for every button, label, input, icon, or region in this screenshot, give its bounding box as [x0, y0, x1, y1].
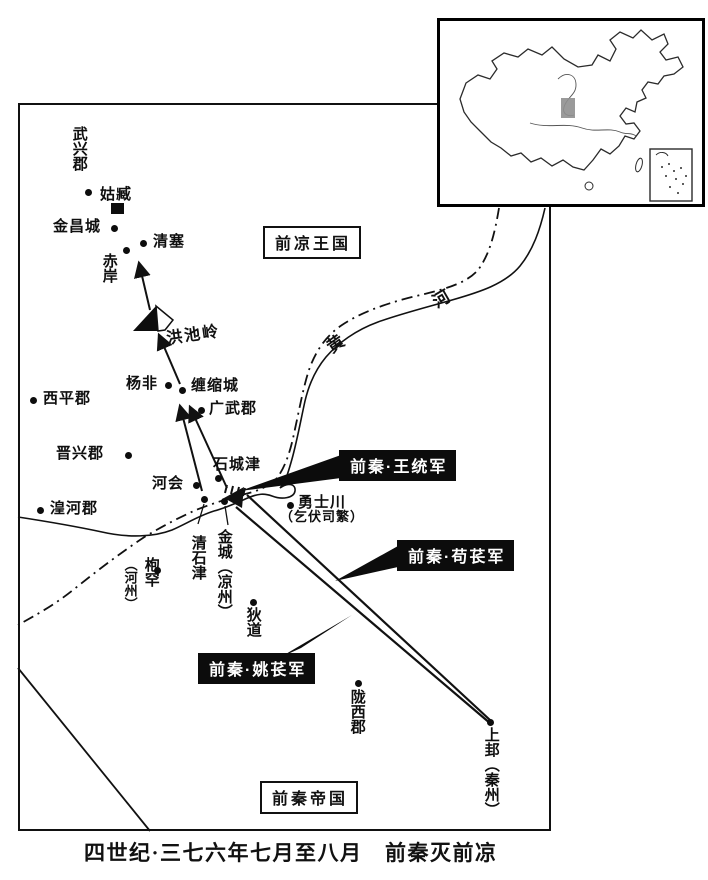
place-marker-5 — [123, 247, 130, 254]
region-box-former-qin: 前秦帝国 — [260, 781, 358, 814]
historical-map-page: 前凉王国 前秦帝国 前秦·王统军 前秦·苟苌军 前秦·姚苌军 黄 河 洪池岭 四… — [0, 0, 708, 880]
south-china-sea-inset-box — [650, 149, 692, 201]
place-marker-14 — [221, 498, 228, 505]
place-marker-2 — [111, 203, 124, 214]
place-label: 金城（凉州） — [216, 529, 232, 619]
place-label: 金昌城 — [53, 219, 101, 235]
caption: 四世纪·三七六年七月至八月 前秦灭前凉 — [84, 837, 498, 867]
china-locator-inset — [437, 18, 705, 207]
hainan-island — [585, 182, 593, 190]
place-marker-4 — [140, 240, 147, 247]
place-label: 清塞 — [153, 234, 185, 250]
place-label: 河会 — [152, 476, 184, 492]
map-frame — [18, 103, 551, 831]
place-label: 缠缩城 — [191, 378, 239, 394]
place-label: 姑臧 — [100, 187, 132, 203]
place-label: 湟河郡 — [50, 501, 98, 517]
inset-river-yangtze — [530, 123, 636, 136]
place-marker-13 — [201, 496, 208, 503]
place-marker-10 — [125, 452, 132, 459]
place-marker-8 — [198, 407, 205, 414]
army-box-yaochang: 前秦·姚苌军 — [198, 653, 315, 684]
army-box-wangtong: 前秦·王统军 — [339, 450, 456, 481]
place-label: 枹罕 — [143, 557, 159, 587]
place-label: 晋兴郡 — [56, 446, 104, 462]
place-marker-9 — [30, 397, 37, 404]
place-marker-11 — [193, 482, 200, 489]
army-box-gouchang: 前秦·苟苌军 — [397, 540, 514, 571]
place-marker-19 — [355, 680, 362, 687]
place-label: 武兴郡 — [71, 126, 87, 171]
locator-shade — [561, 98, 575, 118]
place-label: 清石津 — [190, 535, 206, 580]
place-label: （河州） — [123, 558, 137, 610]
place-marker-17 — [250, 599, 257, 606]
place-label: 杨非 — [126, 376, 158, 392]
place-marker-1 — [85, 189, 92, 196]
place-marker-20 — [487, 719, 494, 726]
place-label: 广武郡 — [209, 401, 257, 417]
place-marker-15 — [37, 507, 44, 514]
place-marker-6 — [165, 382, 172, 389]
taiwan-island — [634, 157, 643, 172]
place-label: 狄道 — [245, 607, 261, 637]
place-label: （乞伏司繁） — [280, 510, 364, 524]
region-box-former-liang: 前凉王国 — [263, 226, 361, 259]
place-label: 陇西郡 — [349, 689, 365, 734]
place-label: 赤岸 — [101, 253, 117, 283]
place-label: 上邽（秦州） — [483, 727, 499, 817]
place-label: 石城津 — [213, 457, 261, 473]
place-label: 西平郡 — [43, 391, 91, 407]
place-marker-12 — [215, 475, 222, 482]
place-marker-7 — [179, 387, 186, 394]
china-outline-map — [440, 21, 702, 204]
place-marker-18 — [287, 502, 294, 509]
place-marker-3 — [111, 225, 118, 232]
